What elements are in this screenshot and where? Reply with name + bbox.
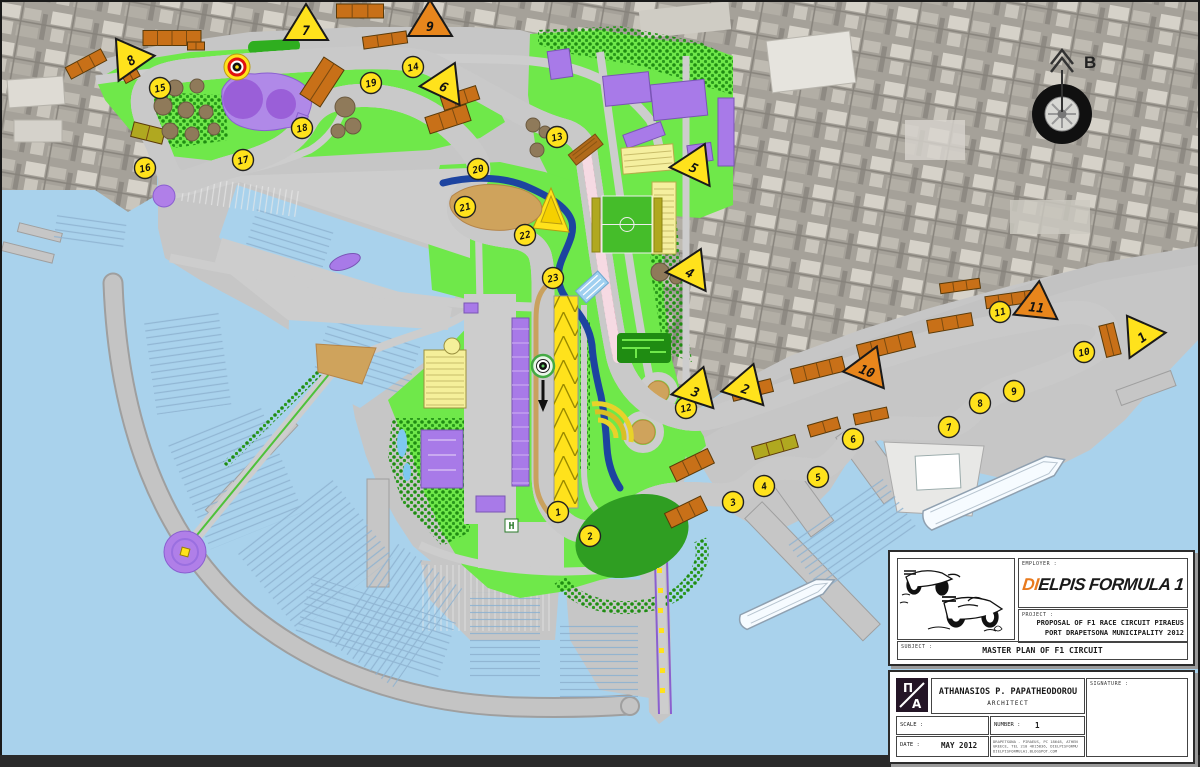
signature-label: SIGNATURE : [1090,681,1129,687]
post-number: 11 [1028,300,1045,317]
storage-tank [526,118,540,132]
turn-marker: 1 [548,502,569,523]
turn-marker: 16 [135,158,156,179]
contact-box: DRAPETSONA - PIRAEUS, PC 18648, ATHENS G… [990,736,1085,757]
storage-tank [178,102,194,118]
architect-logo: Π A [896,678,928,712]
turn-marker: 13 [547,127,568,148]
storage-tank [199,105,213,119]
storage-tank [154,97,172,115]
turn-marker: 6 [843,429,864,450]
project-line2: PORT DRAPETSONA MUNICIPALITY 2012 [1023,628,1184,638]
grandstand [188,42,205,50]
number-value: 1 [1035,721,1040,730]
turn-marker: 18 [292,118,313,139]
turn-marker: 15 [150,78,171,99]
signature-box: SIGNATURE : [1086,678,1188,757]
storage-tank [530,143,544,157]
project-line1: PROPOSAL OF F1 RACE CIRCUIT PIRAEUS [1023,618,1184,628]
architect-title: ARCHITECT [932,700,1084,707]
f1-cars-sketch [897,558,1015,640]
post-number: 9 [426,20,434,35]
storage-tank [335,97,355,117]
title-block: EMPLOYER : DIELPISFORMULA1 PROJECT : PRO… [888,548,1196,764]
turn-marker: 9 [1004,381,1025,402]
turn-marker: 10 [1074,342,1095,363]
date-value: MAY 2012 [941,741,977,750]
masterplan-sheet: H 12345678910111213141516171819202122231… [0,0,1200,767]
turn-marker: 17 [233,150,254,171]
turn-marker: 5 [808,467,829,488]
north-label: B [1084,53,1096,72]
date-box: DATE : MAY 2012 [896,736,989,757]
turn-marker: 8 [970,393,991,414]
dielpis-logo: DIELPISFORMULA1 [1018,575,1188,595]
project-box: PROJECT : PROPOSAL OF F1 RACE CIRCUIT PI… [1018,609,1188,643]
employer-label: EMPLOYER : [1022,561,1057,567]
storage-tank [345,118,361,134]
number-label: NUMBER : [994,722,1021,728]
turn-marker: 19 [361,73,382,94]
storage-tank [185,127,199,141]
helipad-label: H [508,521,514,532]
track-gate-bullseye [224,54,250,80]
grandstand [337,4,384,18]
post-number: 7 [302,24,310,39]
turn-marker: 21 [455,197,476,218]
turn-marker: 4 [754,476,775,497]
storage-tank [190,79,204,93]
date-label: DATE : [900,742,920,748]
logo-top-glyph: Π [903,681,913,695]
scale-label: SCALE : [900,722,923,728]
number-box: NUMBER : 1 [990,716,1085,735]
storage-tank [208,123,220,135]
turn-marker: 14 [403,57,424,78]
subject-value: MASTER PLAN OF F1 CIRCUIT [898,646,1187,655]
architect-name: ATHANASIOS P. PAPATHEODOROU [932,687,1084,697]
subject-box: SUBJECT : MASTER PLAN OF F1 CIRCUIT [897,641,1188,660]
turn-marker: 20 [468,159,489,180]
turn-marker: 3 [723,492,744,513]
turn-marker: 22 [515,225,536,246]
employer-box: EMPLOYER : DIELPISFORMULA1 [1018,558,1188,608]
turn-marker: 23 [543,268,564,289]
helipad: H [505,519,518,532]
turn-marker: 2 [580,526,601,547]
logo-bottom-glyph: A [912,697,922,711]
turn-marker: 11 [990,302,1011,323]
architect-box: ATHANASIOS P. PAPATHEODOROU ARCHITECT [931,678,1085,714]
storage-tank [162,123,178,139]
scale-box: SCALE : [896,716,989,735]
contact-line3: DIELPISFORMULA1.BLOGSPOT.COM [993,749,1078,754]
turn-marker: 7 [939,417,960,438]
storage-tank [331,124,345,138]
